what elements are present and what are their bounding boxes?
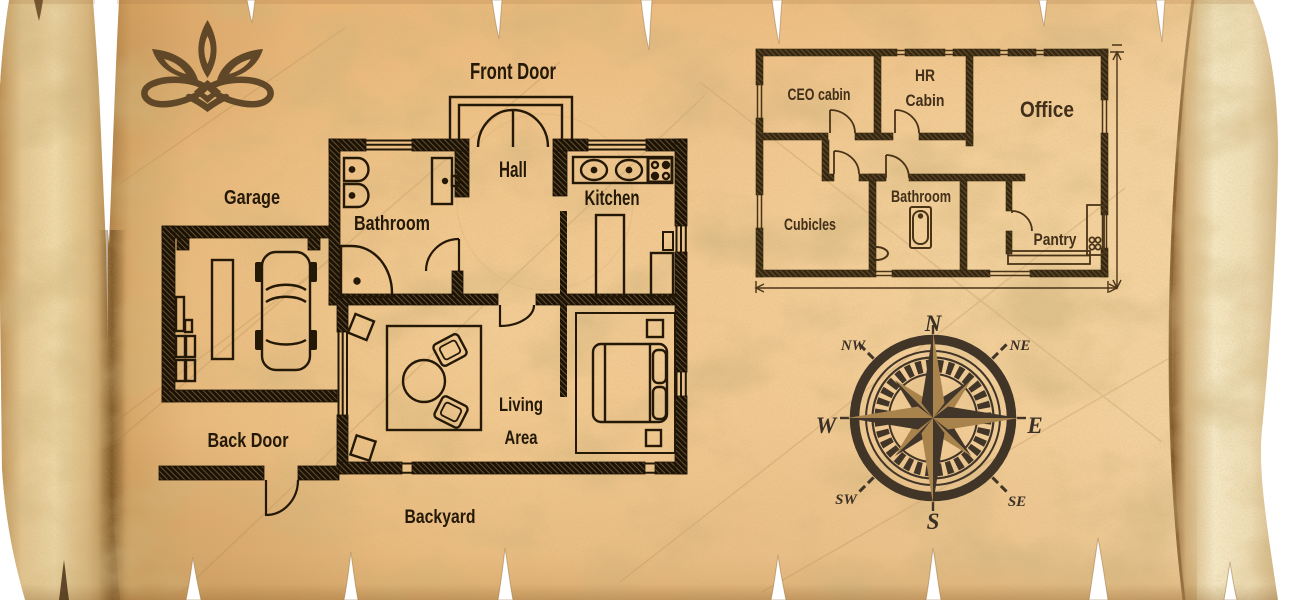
svg-text:S: S <box>927 509 940 534</box>
svg-text:Bathroom: Bathroom <box>354 213 430 235</box>
svg-text:Hall: Hall <box>499 157 527 182</box>
svg-text:HR: HR <box>915 66 935 85</box>
svg-text:W: W <box>816 413 838 438</box>
svg-text:Bathroom: Bathroom <box>891 187 951 206</box>
svg-text:Office: Office <box>1020 97 1074 122</box>
svg-text:Pantry: Pantry <box>1034 230 1077 249</box>
svg-text:CEO cabin: CEO cabin <box>788 85 851 104</box>
svg-text:SW: SW <box>835 492 858 508</box>
svg-text:NE: NE <box>1009 338 1031 354</box>
svg-text:Front Door: Front Door <box>470 58 556 84</box>
svg-text:E: E <box>1026 413 1042 438</box>
svg-text:NW: NW <box>840 338 867 354</box>
svg-text:Kitchen: Kitchen <box>585 187 640 210</box>
svg-text:Garage: Garage <box>224 187 280 209</box>
svg-text:Area: Area <box>505 428 538 449</box>
svg-text:Backyard: Backyard <box>405 507 476 528</box>
svg-text:Back Door: Back Door <box>208 430 289 452</box>
svg-text:Cubicles: Cubicles <box>784 215 836 234</box>
svg-text:Living: Living <box>499 395 543 416</box>
svg-text:N: N <box>924 311 943 336</box>
svg-text:SE: SE <box>1008 494 1026 510</box>
svg-text:Cabin: Cabin <box>906 91 945 110</box>
